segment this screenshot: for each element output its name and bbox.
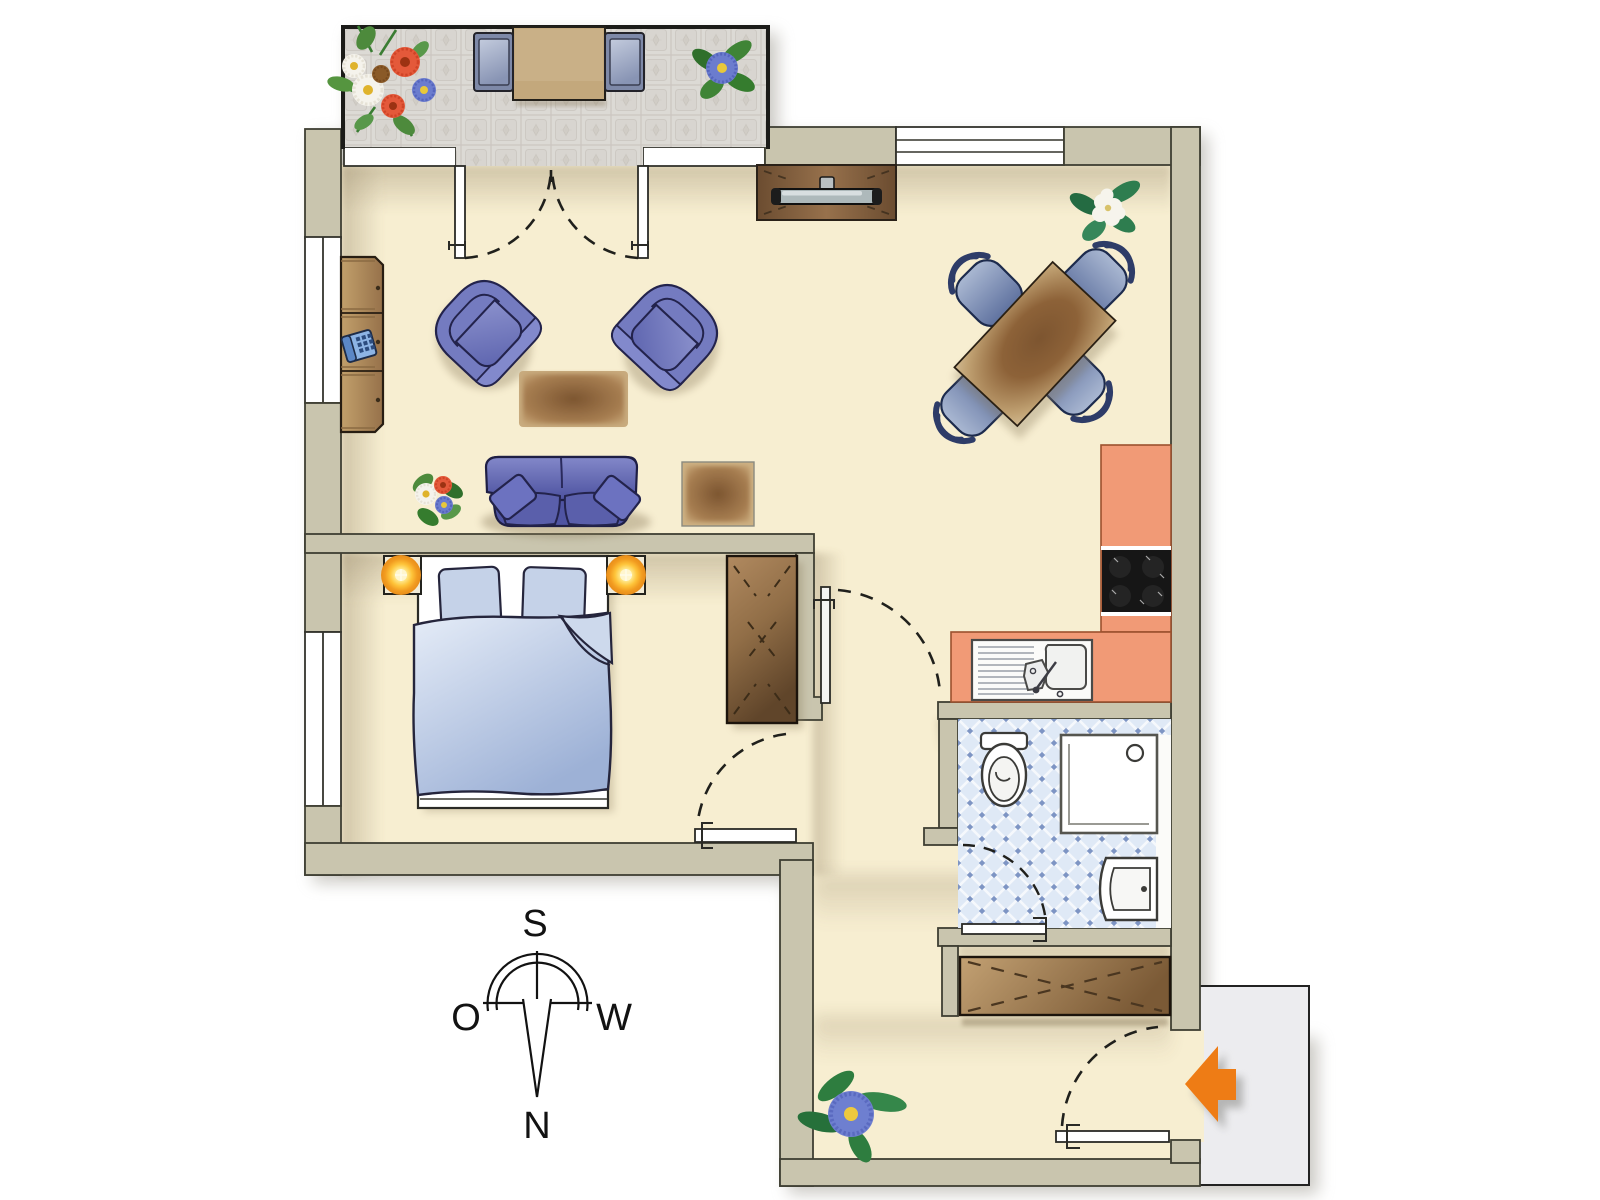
- svg-text:O: O: [451, 997, 481, 1039]
- svg-text:S: S: [522, 903, 547, 945]
- svg-text:W: W: [596, 997, 632, 1039]
- svg-text:N: N: [523, 1105, 550, 1147]
